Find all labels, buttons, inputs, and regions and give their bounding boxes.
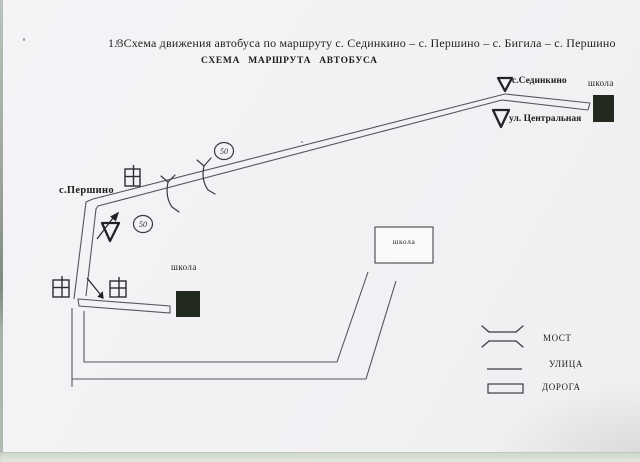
label-sedinkino: с.Сединкино (512, 76, 567, 86)
building-icon-top (125, 165, 140, 186)
bus-stop-icon-central (493, 110, 509, 127)
label-ul-centralnaya: ул. Центральная (509, 114, 581, 124)
scanned-route-scheme-page: 1.3Схема движения автобуса по маршруту с… (0, 0, 640, 462)
speed-sign-value: 50 (139, 220, 147, 229)
speed-sign-value: 50 (220, 147, 228, 156)
bus-stop-icon-pershino (102, 223, 119, 241)
school-square-left (176, 291, 200, 317)
bus-stop-icon-sedinkino (498, 78, 512, 91)
speed-sign-lower: 50 (134, 216, 153, 233)
legend-bridge-icon (482, 326, 523, 347)
label-pershino: с.Першино (59, 185, 114, 197)
label-school-top-right: школа (588, 79, 614, 89)
legend-label-bridge: МОСТ (543, 334, 572, 344)
label-school-center: школа (375, 238, 433, 246)
school-square-top-right (593, 95, 614, 122)
label-school-left: школа (171, 263, 197, 273)
street-segment (78, 299, 170, 313)
legend-road-icon (488, 384, 523, 393)
building-icon-left (53, 276, 69, 297)
scan-edge-bottom (0, 452, 640, 462)
speed-sign-upper: 50 (215, 143, 234, 160)
legend-label-road: ДОРОГА (542, 383, 581, 393)
route-loop (72, 272, 396, 387)
building-icon-junction (110, 277, 126, 297)
main-road (74, 94, 590, 299)
legend-label-street: УЛИЦА (549, 360, 583, 370)
direction-arrow-down (87, 278, 103, 298)
